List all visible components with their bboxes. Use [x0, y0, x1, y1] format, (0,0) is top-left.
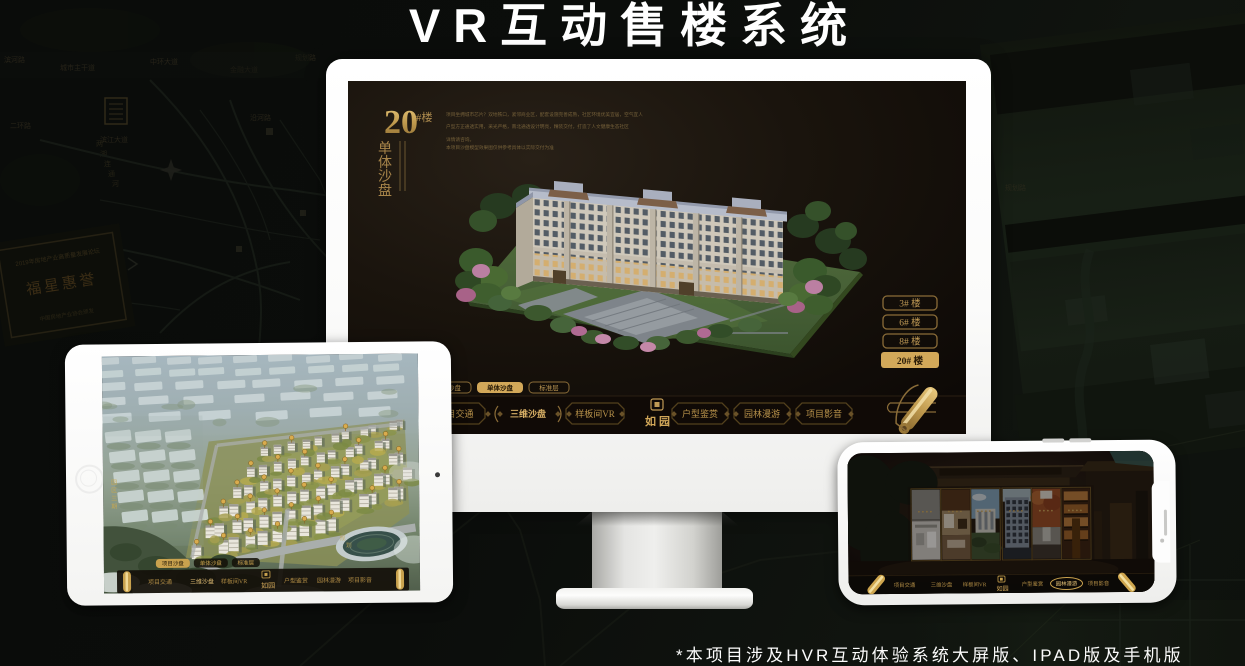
svg-text:三维沙盘: 三维沙盘 — [510, 408, 546, 419]
svg-text:项目坐拥城市芯片？双地铁口，紧邻商业区，配套设施完善成熟，社: 项目坐拥城市芯片？双地铁口，紧邻商业区，配套设施完善成熟，社区环境优美宜居，空气… — [446, 111, 643, 118]
svg-text:如园: 如园 — [261, 581, 275, 590]
svg-text:户型鉴赏: 户型鉴赏 — [1022, 580, 1044, 588]
svg-text:单体沙盘: 单体沙盘 — [487, 383, 514, 392]
svg-text:单: 单 — [378, 141, 392, 157]
svg-text:详情请咨询。: 详情请咨询。 — [446, 136, 474, 143]
svg-text:三: 三 — [111, 495, 117, 502]
svg-text:项目影音: 项目影音 — [348, 576, 372, 584]
svg-text:单体沙盘: 单体沙盘 — [200, 559, 223, 567]
svg-text:20: 20 — [384, 104, 418, 141]
svg-text:#楼: #楼 — [416, 110, 433, 124]
svg-text:河: 河 — [112, 180, 119, 188]
svg-text:园: 园 — [659, 415, 670, 428]
svg-text:园林漫游: 园林漫游 — [317, 576, 341, 584]
svg-text:项目影音: 项目影音 — [1088, 579, 1110, 587]
svg-text:通: 通 — [108, 169, 115, 178]
svg-text:沙: 沙 — [378, 170, 392, 185]
svg-text:城市主干道: 城市主干道 — [60, 63, 95, 72]
svg-text:三维沙盘: 三维沙盘 — [931, 580, 953, 588]
svg-text:样板间VR: 样板间VR — [575, 408, 615, 419]
svg-text:滨河路: 滨河路 — [4, 55, 25, 64]
svg-text:如园: 如园 — [997, 584, 1009, 592]
svg-text:项目沙盘: 项目沙盘 — [162, 559, 185, 567]
svg-text:样板间VR: 样板间VR — [963, 580, 987, 588]
svg-text:户型鉴赏: 户型鉴赏 — [284, 577, 308, 585]
svg-text:8# 楼: 8# 楼 — [899, 336, 921, 348]
svg-text:沿河路: 沿河路 — [250, 113, 271, 122]
svg-text:划: 划 — [346, 541, 352, 549]
svg-text:如: 如 — [645, 414, 656, 428]
svg-text:盘: 盘 — [378, 182, 392, 199]
svg-text:期: 期 — [111, 502, 117, 510]
svg-text:项目交通: 项目交通 — [148, 578, 172, 586]
svg-text:样板间VR: 样板间VR — [221, 577, 247, 585]
svg-text:规: 规 — [340, 534, 346, 542]
svg-text:6# 楼: 6# 楼 — [899, 317, 921, 329]
svg-text:20# 楼: 20# 楼 — [897, 355, 924, 367]
svg-text:标准层: 标准层 — [539, 383, 559, 392]
svg-text:户型方正通透实用，采光严格，南北通透设计明亮，精装交付，打造: 户型方正通透实用，采光严格，南北通透设计明亮，精装交付，打造了人文健康生态社区 — [446, 123, 629, 130]
svg-text:中环大道: 中环大道 — [150, 57, 178, 66]
svg-text:体: 体 — [378, 155, 392, 171]
svg-text:项目交通: 项目交通 — [894, 581, 916, 589]
svg-text:3# 楼: 3# 楼 — [899, 298, 921, 310]
svg-text:园: 园 — [111, 479, 117, 486]
svg-text:区: 区 — [111, 487, 117, 494]
svg-text:滨江大道: 滨江大道 — [100, 135, 128, 144]
svg-text:园林漫游: 园林漫游 — [744, 408, 780, 419]
svg-text:三维沙盘: 三维沙盘 — [190, 577, 214, 585]
svg-text:两: 两 — [96, 140, 103, 148]
svg-text:本项目沙盘模型效果图仅供参考具体以实际交付为准: 本项目沙盘模型效果图仅供参考具体以实际交付为准 — [446, 144, 554, 151]
svg-text:二环路: 二环路 — [10, 121, 31, 130]
svg-text:项目影音: 项目影音 — [806, 408, 842, 419]
svg-text:标准层: 标准层 — [238, 559, 255, 567]
svg-text:户型鉴赏: 户型鉴赏 — [682, 408, 718, 419]
svg-text:园林漫游: 园林漫游 — [1056, 579, 1078, 587]
svg-text:连: 连 — [104, 159, 111, 168]
svg-text:规划路: 规划路 — [1005, 183, 1026, 192]
